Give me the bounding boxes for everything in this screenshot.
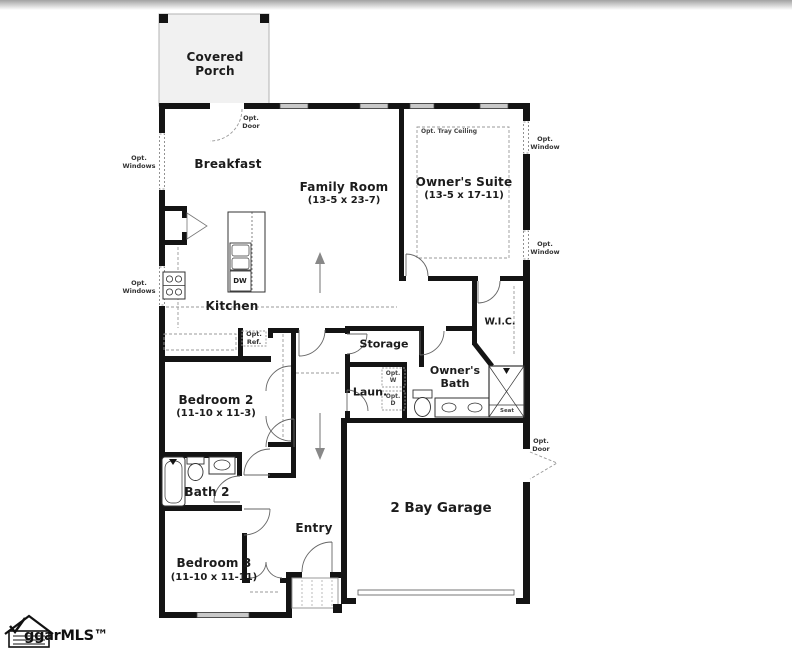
wic-door — [478, 281, 500, 303]
floor-plan-drawing — [0, 0, 792, 649]
breakfast-label: Breakfast — [194, 157, 261, 171]
linen-closet-door — [244, 449, 270, 475]
front-door — [302, 542, 332, 572]
family-room-dims: (13-5 x 23-7) — [289, 195, 399, 207]
toilet2-bowl — [188, 464, 203, 481]
opt-door-swing-garage — [530, 452, 557, 479]
shower-seat-label: Seat — [500, 408, 514, 414]
opt-tray-ceiling-label: Opt. Tray Ceiling — [421, 128, 477, 135]
dishwasher-label: DW — [233, 277, 247, 285]
covered-porch-label: Covered Porch — [183, 50, 247, 78]
opt-window-upper-label: Opt. Window — [529, 135, 561, 151]
garage-label: 2 Bay Garage — [390, 501, 491, 517]
opt-door-swing-breakfast — [210, 109, 242, 141]
opt-dryer-label: Opt. D — [384, 393, 402, 407]
bedroom2-label: Bedroom 2 — [161, 393, 271, 407]
garage-door — [358, 590, 514, 595]
opt-door-breakfast-label: Opt. Door — [240, 114, 262, 130]
stove — [163, 272, 185, 299]
down-arrow-head — [315, 448, 325, 460]
bedroom3-label: Bedroom 3 — [159, 556, 269, 570]
laundry-label: Laun. — [353, 387, 387, 400]
owners-suite-label: Owner's Suite — [409, 175, 519, 189]
up-arrow-head — [315, 252, 325, 264]
front-stoop — [292, 578, 342, 613]
wic-angled-wall — [474, 343, 492, 366]
owners-suite-door — [406, 254, 428, 276]
opt-washer-label: Opt. W — [384, 370, 402, 384]
toilet2-tank — [187, 457, 204, 464]
opt-window-lower-label: Opt. Window — [529, 240, 561, 256]
hall-door — [299, 330, 325, 356]
owners-bath-label: Owner's Bath — [429, 365, 481, 391]
family-room-label: Family Room — [289, 180, 399, 194]
bath2-label: Bath 2 — [184, 485, 229, 499]
opt-windows-upper-label: Opt. Windows — [121, 154, 157, 170]
bedroom2-dims: (11-10 x 11-3) — [161, 408, 271, 420]
kitchen-label: Kitchen — [206, 299, 259, 313]
bedroom3-door — [244, 509, 270, 535]
flow-arrows — [315, 252, 325, 460]
pantry-door-swing — [187, 213, 207, 239]
mls-watermark: ggarMLS™ — [24, 628, 108, 644]
floor-plan-canvas: Covered Porch Breakfast Family Room (13-… — [0, 0, 792, 649]
opt-door-garage-label: Opt. Door — [530, 437, 552, 453]
wic-label: W.I.C. — [484, 316, 515, 327]
opt-ref-label: Opt. Ref. — [244, 330, 264, 346]
storage-label: Storage — [360, 339, 409, 352]
toilet-bowl — [415, 398, 431, 417]
bedroom3-dims: (11-10 x 11-11) — [159, 572, 269, 584]
owners-suite-dims: (13-5 x 17-11) — [409, 190, 519, 202]
pantry — [159, 206, 207, 245]
toilet-tank — [413, 390, 432, 398]
entry-label: Entry — [295, 521, 332, 535]
opt-windows-lower-label: Opt. Windows — [121, 279, 157, 295]
